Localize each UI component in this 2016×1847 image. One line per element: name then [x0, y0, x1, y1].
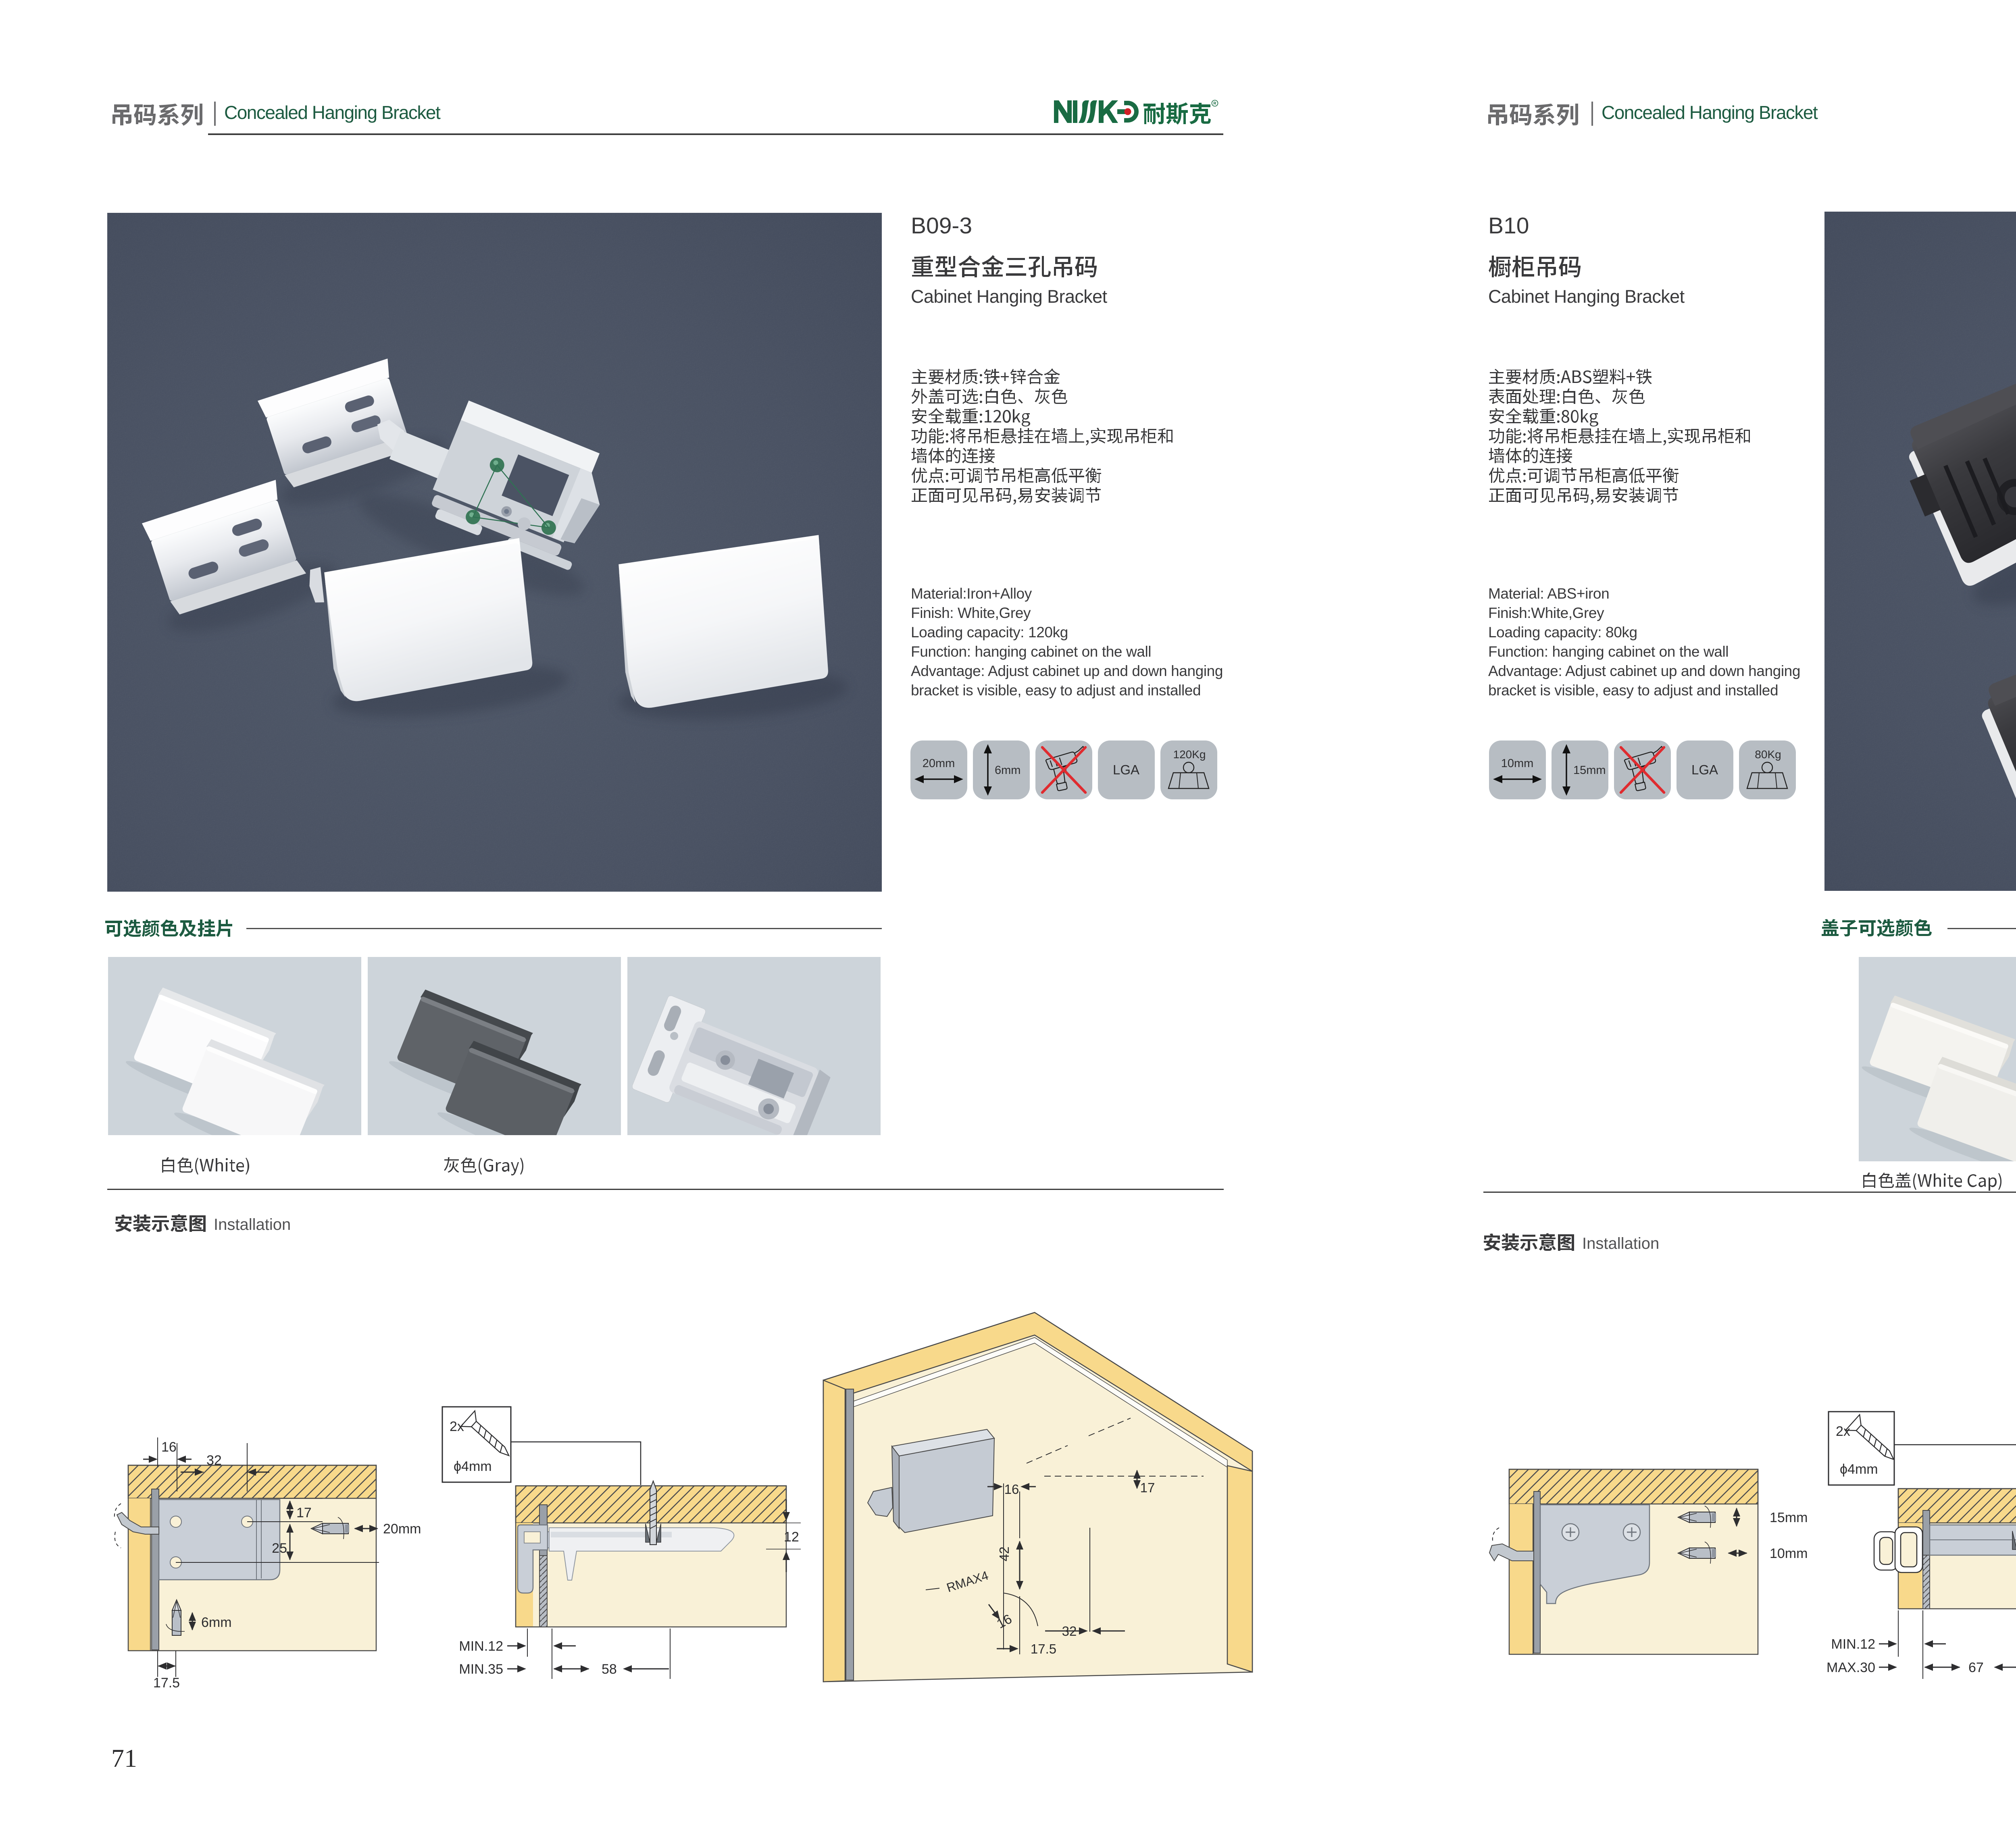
svg-text:17: 17 [1140, 1480, 1155, 1495]
svg-text:MIN.12: MIN.12 [1831, 1637, 1875, 1652]
svg-text:6mm: 6mm [995, 764, 1020, 777]
svg-text:17.5: 17.5 [153, 1675, 180, 1691]
svg-text:20mm: 20mm [383, 1521, 421, 1537]
svg-text:MIN.35: MIN.35 [459, 1662, 503, 1677]
svg-text:12: 12 [784, 1529, 799, 1545]
svg-text:17.5: 17.5 [1031, 1641, 1056, 1656]
svg-text:LGA: LGA [1691, 762, 1718, 777]
svg-text:67: 67 [1968, 1660, 1984, 1675]
svg-text:25: 25 [272, 1541, 287, 1556]
svg-text:17: 17 [296, 1505, 312, 1520]
svg-text:15mm: 15mm [1573, 764, 1606, 777]
svg-text:42: 42 [997, 1547, 1012, 1562]
svg-text:ϕ4mm: ϕ4mm [454, 1459, 492, 1474]
svg-text:15mm: 15mm [1770, 1510, 1808, 1525]
svg-text:6mm: 6mm [201, 1615, 232, 1630]
svg-text:32: 32 [206, 1453, 222, 1468]
svg-text:80Kg: 80Kg [1755, 748, 1781, 761]
svg-text:120Kg: 120Kg [1173, 748, 1206, 761]
svg-text:LGA: LGA [1113, 762, 1139, 777]
svg-text:MAX.30: MAX.30 [1826, 1660, 1875, 1675]
svg-text:ϕ4mm: ϕ4mm [1840, 1462, 1878, 1477]
svg-text:10mm: 10mm [1770, 1546, 1808, 1561]
svg-text:10mm: 10mm [1501, 757, 1534, 770]
svg-text:2x: 2x [1836, 1424, 1850, 1439]
svg-text:16: 16 [1004, 1482, 1019, 1497]
svg-text:MIN.12: MIN.12 [459, 1639, 503, 1654]
svg-text:20mm: 20mm [923, 757, 955, 770]
svg-text:16: 16 [161, 1439, 177, 1455]
svg-text:58: 58 [602, 1662, 617, 1677]
svg-text:R: R [1213, 102, 1216, 106]
